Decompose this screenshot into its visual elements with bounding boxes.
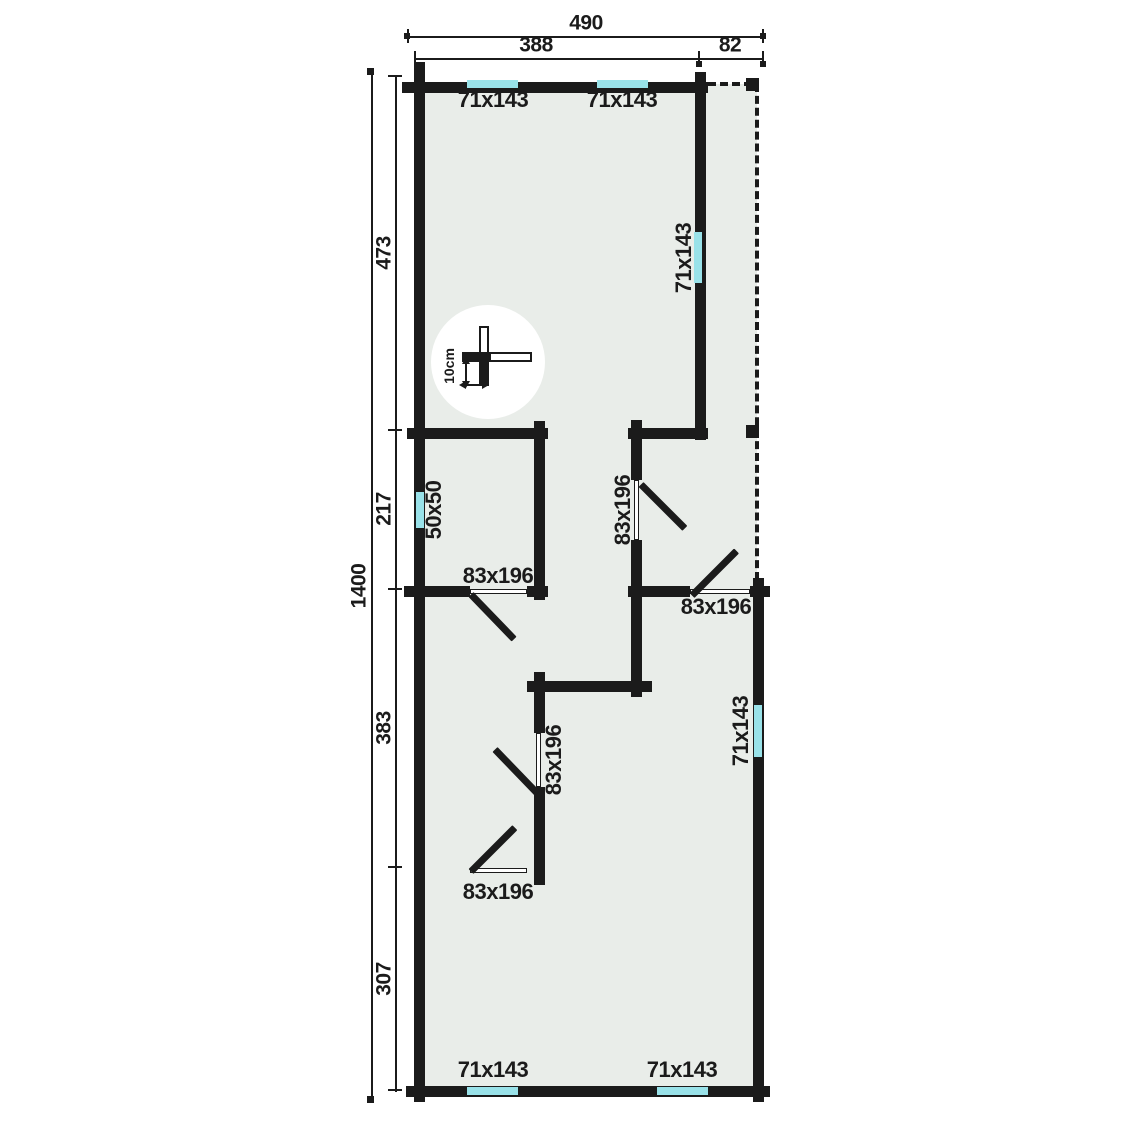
dimension-dot: [760, 33, 766, 39]
scale-arrow-vertical: [465, 363, 467, 382]
scale-label: 10cm: [442, 348, 456, 384]
window-label-gable-wall: 71x143: [673, 223, 695, 293]
door-label-right-room: 83x196: [681, 596, 751, 618]
wall-interior-v-center-upper-a: [631, 420, 642, 480]
wall-interior-h-mid-left-a: [404, 586, 470, 597]
dimension-tick: [388, 588, 402, 590]
dimension-overall-width: 490: [569, 13, 603, 34]
dimension-dot: [696, 61, 702, 67]
window-right-wall: [754, 705, 762, 757]
wall-exterior-bottom: [406, 1086, 770, 1097]
scale-arrow-horizontal: [464, 384, 484, 386]
dimension-tick: [388, 1089, 402, 1091]
dimension-main-width: 388: [519, 35, 553, 56]
window-label-bottom-left: 71x143: [458, 1059, 528, 1081]
wall-interior-h-mid-right-b: [750, 586, 770, 597]
dimension-tick: [388, 866, 402, 868]
dimension-line-segments: [395, 76, 397, 1092]
dimension-tick: [388, 429, 402, 431]
dimension-segment-lower-mid: 383: [374, 711, 395, 745]
arrow-up-icon: [462, 357, 470, 364]
dimension-segment-upper-mid: 217: [374, 492, 395, 526]
door-label-center-lower: 83x196: [543, 725, 565, 795]
wall-exterior-right-lower: [753, 578, 764, 1102]
window-bottom-left: [467, 1087, 518, 1095]
dimension-tick: [388, 75, 402, 77]
dimension-tick: [414, 51, 416, 65]
dimension-segment-top: 473: [374, 236, 395, 270]
door-leaf-left-room: [470, 589, 527, 594]
wall-exterior-left: [414, 62, 425, 1102]
dimension-dot: [760, 61, 766, 67]
dimension-dot: [367, 68, 374, 75]
door-label-left-room: 83x196: [463, 565, 533, 587]
porch-post-marker-mid: [746, 425, 759, 438]
dimension-dot: [367, 1096, 374, 1103]
dimension-line-overall-width: [408, 36, 764, 38]
dimension-segment-bottom: 307: [374, 962, 395, 996]
dimension-porch-width: 82: [719, 35, 741, 56]
window-label-small-left: 50x50: [423, 481, 445, 540]
door-label-bottom-room: 83x196: [463, 881, 533, 903]
wall-interior-v-left-room: [534, 421, 545, 600]
dimension-dot: [404, 33, 410, 39]
floor-plan-canvas: 490 388 82 1400 473 217 383 307 71x143 7…: [0, 0, 1125, 1125]
wall-interior-v-center-upper-b: [631, 540, 642, 697]
arrow-left-icon: [459, 381, 466, 389]
porch-post-marker-top: [746, 78, 759, 91]
window-label-top-left: 71x143: [458, 89, 528, 111]
arrow-right-icon: [482, 381, 489, 389]
dimension-overall-height: 1400: [349, 564, 370, 609]
wall-interior-h-center: [527, 681, 652, 692]
window-bottom-right: [657, 1087, 708, 1095]
dimension-line-overall-height: [371, 72, 373, 1100]
door-label-center-upper: 83x196: [612, 475, 634, 545]
window-label-bottom-right: 71x143: [647, 1059, 717, 1081]
dimension-line-sub-width: [415, 58, 764, 60]
wall-interior-v-center-lower-b: [534, 787, 545, 885]
scale-log-horizontal-outline: [489, 352, 532, 362]
window-label-top-right: 71x143: [587, 89, 657, 111]
porch-dashed-line-right: [755, 84, 759, 580]
wall-exterior-top: [402, 82, 708, 93]
window-label-right-wall: 71x143: [730, 696, 752, 766]
wall-interior-h-upper-left: [407, 428, 548, 439]
